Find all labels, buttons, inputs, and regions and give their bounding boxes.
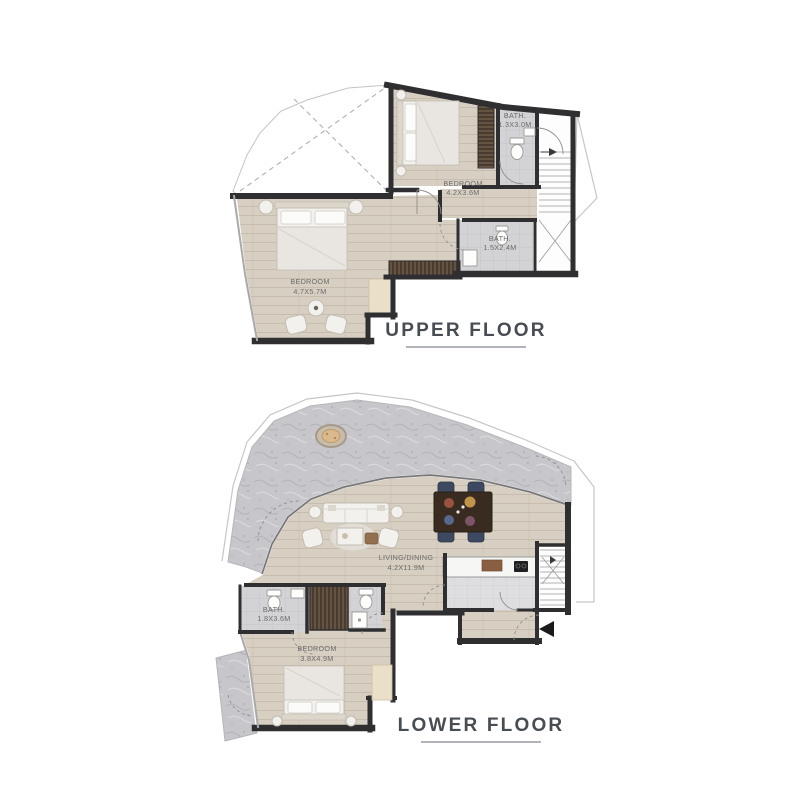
room-label-bath2-dims: 1.5X2.4M: [483, 243, 516, 252]
room-label-bath1-name: BATH.: [504, 111, 526, 120]
nightstand-icon: [349, 200, 363, 214]
upper-floor-plan: BATH. 1.3X3.0M BEDROOM 4.2X3.6M BATH. 1.…: [233, 85, 597, 347]
floorplan-canvas: BATH. 1.3X3.0M BEDROOM 4.2X3.6M BATH. 1.…: [0, 0, 800, 800]
lower-edge-sliver: [574, 461, 594, 602]
ottoman-icon: [365, 533, 378, 544]
planter-icon: [316, 425, 346, 447]
nightstand-icon: [272, 716, 282, 726]
lower-floor-plan: LIVING/DINING 4.2X11.9M BATH. 1.8X3.6M B…: [216, 393, 594, 742]
room-label-bath1-dims: 1.3X3.0M: [498, 120, 531, 129]
bed-icon: [396, 90, 459, 176]
upper-stairwell: [537, 114, 573, 272]
room-label-bedroom-name: BEDROOM: [443, 179, 482, 188]
pillow-icon: [328, 505, 336, 511]
nightstand-icon: [396, 166, 406, 176]
room-label-bedroom-dims: 3.8X4.9M: [300, 654, 333, 663]
side-table-icon: [309, 506, 321, 518]
nightstand-icon: [346, 716, 356, 726]
hall-floor: [447, 577, 537, 610]
wardrobe-icon: [310, 585, 348, 630]
upper-floor-title: UPPER FLOOR: [385, 320, 546, 341]
room-label-bedroom-name: BEDROOM: [297, 644, 336, 653]
kitchen-counter: [443, 557, 537, 577]
desk-icon: [372, 665, 392, 700]
room-label-bath-name: BATH.: [263, 605, 285, 614]
dining-table-icon: [434, 492, 492, 532]
bed-icon: [272, 666, 356, 726]
cutting-board-icon: [482, 560, 502, 571]
room-label-bath2-name: BATH.: [489, 234, 511, 243]
side-table-icon: [391, 506, 403, 518]
lower-floor-title: LOWER FLOOR: [398, 715, 565, 736]
nightstand-icon: [259, 200, 273, 214]
floorplan-page: BATH. 1.3X3.0M BEDROOM 4.2X3.6M BATH. 1.…: [0, 0, 800, 800]
upper-edge-sliver: [574, 114, 597, 222]
room-label-living-name: LIVING/DINING: [379, 553, 434, 562]
wardrobe-icon: [478, 106, 494, 168]
pillow-icon: [377, 505, 385, 511]
nightstand-icon: [396, 90, 406, 100]
entry-arrow-icon: [539, 621, 554, 637]
wardrobe-icon: [389, 261, 460, 276]
desk-icon: [369, 279, 391, 313]
room-label-master-name: BEDROOM: [290, 277, 329, 286]
room-label-master-dims: 4.7X5.7M: [293, 287, 326, 296]
room-label-bedroom-dims: 4.2X3.6M: [446, 188, 479, 197]
room-label-living-dims: 4.2X11.9M: [388, 563, 425, 572]
room-label-bath-dims: 1.8X3.6M: [257, 614, 290, 623]
coffee-table-icon: [337, 528, 363, 545]
